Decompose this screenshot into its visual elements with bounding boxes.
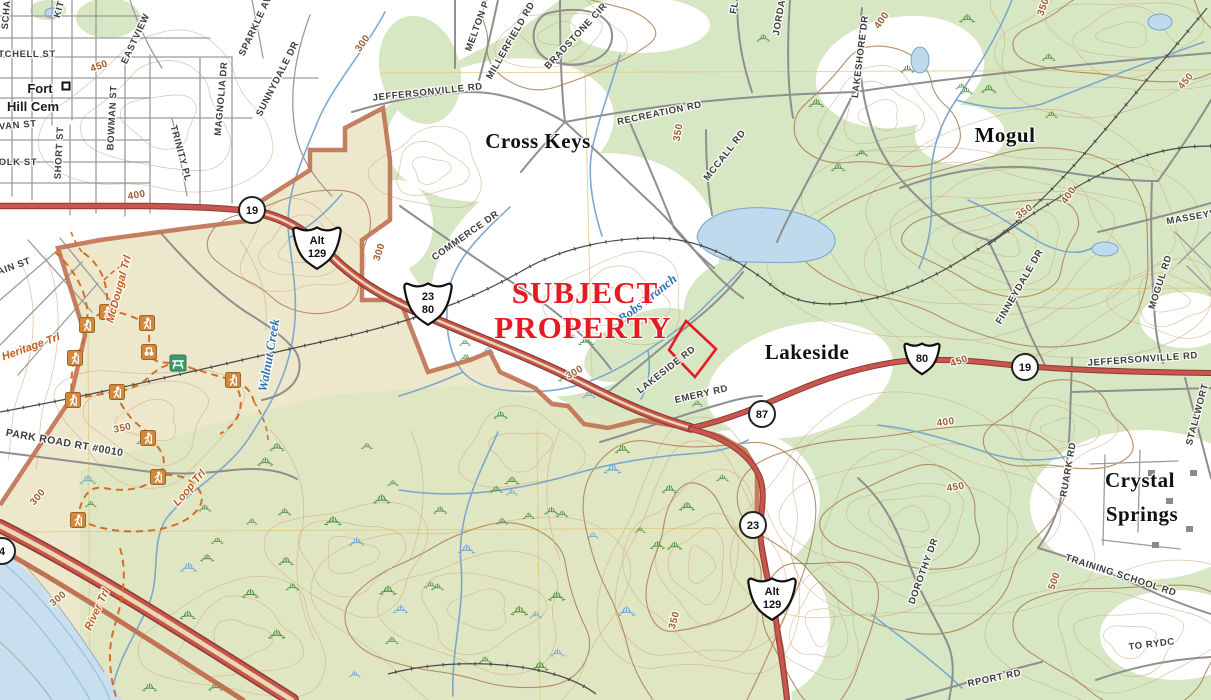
svg-text:Alt: Alt [310,235,325,247]
feature-label-fort: Fort [27,81,53,96]
hiker-trailhead-icon [151,470,166,485]
hiker-trailhead-icon [110,385,125,400]
subject-property-label-line1: SUBJECT [512,275,659,310]
place-label-springs: Springs [1106,502,1178,526]
svg-text:19: 19 [246,205,258,217]
svg-text:23: 23 [747,520,759,532]
svg-text:87: 87 [756,409,768,421]
binoculars-overlook-icon [142,345,157,360]
svg-text:4: 4 [0,546,6,558]
svg-text:23: 23 [422,291,434,303]
svg-text:19: 19 [1019,362,1031,374]
svg-text:Alt: Alt [765,586,780,598]
picnic-area-icon [170,355,186,371]
topo-map-canvas[interactable]: 19Alt129238087801923Alt1294 SCHAKITTCHEL… [0,0,1211,700]
hiker-trailhead-icon [71,513,86,528]
svg-text:80: 80 [422,304,434,316]
route-shield-19: 19 [1012,354,1038,380]
street-label-fl: FL [728,0,741,15]
feature-label-hill-cem: Hill Cem [7,99,59,114]
hiker-trailhead-icon [141,431,156,446]
hiker-trailhead-icon [68,351,83,366]
subject-property-annotation: SUBJECT PROPERTY [494,275,671,345]
route-shield-19: 19 [239,197,265,223]
hiker-trailhead-icon [226,373,241,388]
building-footprint [1152,542,1159,548]
place-label-mogul: Mogul [975,123,1036,147]
route-shield-23: 23 [740,512,766,538]
svg-text:80: 80 [916,353,928,365]
place-label-lakeside: Lakeside [765,340,850,364]
svg-text:129: 129 [308,248,326,260]
street-label-olk-st: OLK ST [0,157,37,168]
topo-map-svg: 19Alt129238087801923Alt1294 SCHAKITTCHEL… [0,0,1211,700]
building-footprint [1190,470,1197,476]
subject-property-label-line2: PROPERTY [494,310,671,345]
hiker-trailhead-icon [140,316,155,331]
place-label-crystal: Crystal [1105,468,1175,492]
svg-text:129: 129 [763,599,781,611]
building-footprint [1186,526,1193,532]
hiker-trailhead-icon [66,393,81,408]
street-label-tchell-st: TCHELL ST [0,49,56,60]
hiker-trailhead-icon [80,318,95,333]
place-label-cross-keys: Cross Keys [485,129,591,153]
route-shield-87: 87 [749,401,775,427]
